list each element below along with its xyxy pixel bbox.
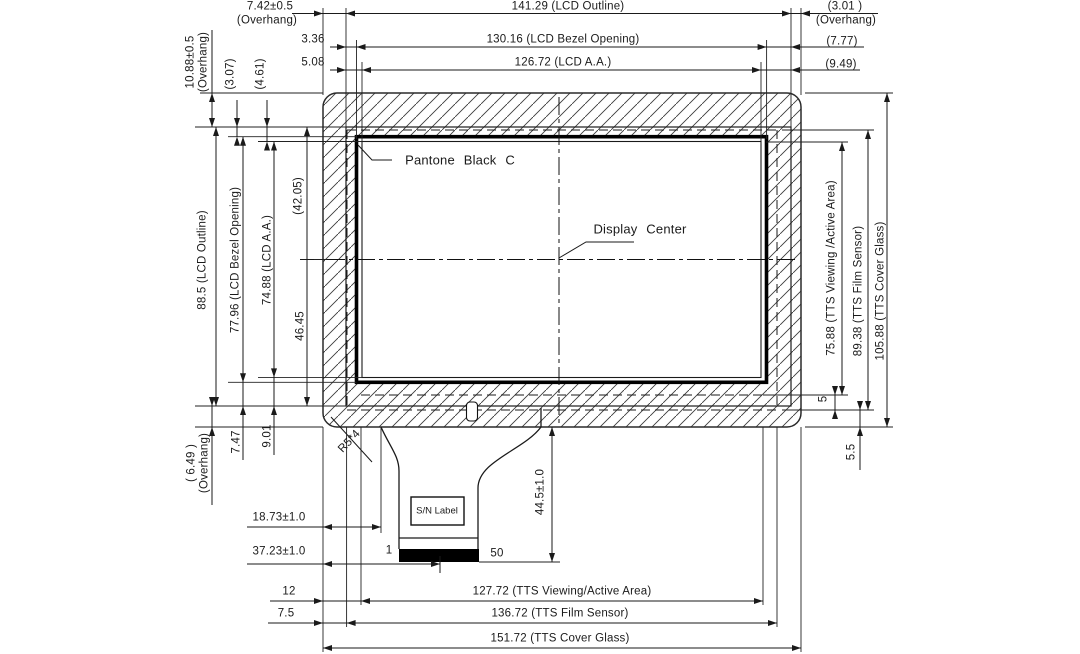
dim-overhang-left-note: (Overhang) (237, 15, 297, 27)
dim-viewing-offset-left: 12 (282, 586, 295, 598)
dim-lcd-outline-height: 88.5 (LCD Outline) (197, 210, 209, 309)
dim-bezel-opening-height: 77.96 (LCD Bezel Opening) (230, 187, 242, 333)
dim-bezel-offset-bottom: 7.47 (231, 430, 243, 453)
dim-overhang-right: (3.01 ) (828, 1, 863, 13)
dim-center-to-top: (42.05) (293, 177, 305, 215)
dim-aa-offset-left: 5.08 (301, 57, 324, 69)
lcd-dimension-drawing: 7.42±0.5 (Overhang) 141.29 (LCD Outline)… (0, 0, 1080, 654)
dim-bezel-offset-right: (7.77) (826, 36, 857, 48)
dim-tts-glass-width: 151.72 (TTS Cover Glass) (490, 633, 629, 645)
dim-tts-glass-height: 105.88 (TTS Cover Glass) (875, 221, 887, 360)
pin-last-label: 50 (490, 548, 503, 560)
dim-center-to-bottom: 46.45 (295, 311, 307, 341)
dim-overhang-bottom-note: (Overhang) (199, 433, 211, 493)
dim-tts-viewing-height: 75.88 (TTS Viewing /Active Area) (826, 180, 838, 356)
dim-bezel-offset-top: (3.07) (225, 58, 237, 89)
drawing-canvas (0, 0, 1080, 654)
dim-bezel-opening-width: 130.16 (LCD Bezel Opening) (487, 34, 640, 46)
pantone-black-label: Pantone Black C (405, 154, 515, 167)
dim-aa-height: 74.88 (LCD A.A.) (262, 215, 274, 305)
fpc-tail (381, 408, 541, 549)
dim-overhang-top: 10.88±0.5 (185, 36, 197, 89)
sn-label-text: S/N Label (416, 506, 458, 516)
dim-overhang-left: 7.42±0.5 (247, 1, 293, 13)
dim-overhang-right-note: (Overhang) (816, 15, 876, 27)
dim-fpc-length: 44.5±1.0 (535, 469, 547, 515)
dim-tts-film-width: 136.72 (TTS Film Sensor) (491, 608, 628, 620)
dim-tts-film-height: 89.38 (TTS Film Sensor) (853, 226, 865, 357)
dim-bezel-offset-left: 3.36 (301, 34, 324, 46)
display-center-label: Display Center (593, 223, 686, 236)
dim-lcd-outline-width: 141.29 (LCD Outline) (512, 1, 625, 13)
dim-aa-offset-top: (4.61) (255, 58, 267, 89)
pin-first-label: 1 (386, 545, 393, 557)
corner-notch (467, 402, 478, 421)
dim-overhang-bottom: ( 6.49 ) (186, 444, 198, 482)
dim-viewing-to-film: 5 (818, 396, 830, 403)
dim-aa-width: 126.72 (LCD A.A.) (515, 57, 612, 69)
dim-aa-offset-bottom: 9.01 (262, 424, 274, 447)
dim-film-offset-left: 7.5 (278, 608, 295, 620)
dim-fpc-offset: 18.73±1.0 (253, 512, 306, 524)
dim-aa-offset-right: (9.49) (825, 59, 856, 71)
connector-bar (399, 549, 479, 562)
dim-connector-offset: 37.23±1.0 (253, 546, 306, 558)
dim-tts-viewing-width: 127.72 (TTS Viewing/Active Area) (473, 586, 652, 598)
dim-film-to-glass: 5.5 (846, 444, 858, 461)
dim-overhang-top-note: (Overhang) (198, 32, 210, 92)
